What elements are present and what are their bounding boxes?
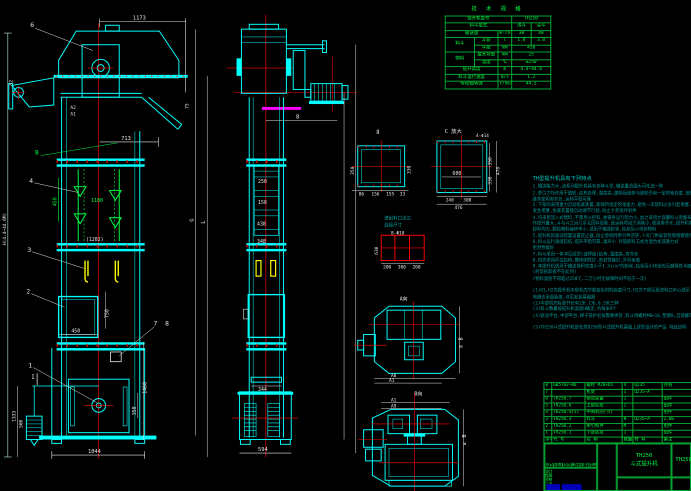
spec-cell: 料斗型式 [445, 23, 511, 30]
spec-cell: 温度 [475, 59, 498, 66]
bom-cell: M [622, 423, 633, 430]
title-block-highlight-1 [546, 484, 560, 490]
bom-cell: 机架 [585, 389, 622, 396]
bom-cell [552, 389, 585, 396]
title-block-drawing-no: TH250.0 [671, 443, 691, 477]
dim-450: 450 [71, 329, 80, 335]
drawing-number: TH250.0 [675, 456, 691, 464]
title-block-row-label: 标记 [545, 463, 554, 467]
detail-C-r1: 350 [488, 157, 494, 165]
bom-cell: 1 [622, 396, 633, 403]
side-dim-B: B [296, 115, 299, 121]
detail-flange-dv: 630 [374, 246, 380, 254]
bom-grid: 8GB5782—86螺栓 M20×654Q235外购7机架1Q235—A6TH2… [543, 382, 691, 444]
platform-side-dimB: B [462, 435, 468, 438]
spec-cell: 48 [531, 30, 551, 37]
spec-cell: m [498, 67, 512, 74]
bom-cell: TH250.4(5) [552, 410, 585, 417]
notes-block: TH型提升机具有下列特点 1.输送能力大,该系列提升机具有多种斗型,输送量范围大… [533, 176, 691, 332]
dim-1044: 1044 [88, 449, 101, 455]
detail-flange-t2: 连接尺寸 [384, 222, 402, 229]
bom-cell: 1 [544, 430, 552, 437]
spec-cell: ℃ [498, 59, 512, 66]
spec-cell: 1.8 [512, 38, 532, 45]
detail-flange-t1: 进出料口法兰 [384, 215, 411, 222]
spec-cell: 斗容 [475, 38, 498, 45]
bom-cell: 组件 [662, 396, 691, 403]
spec-cell: 提升高度 [445, 67, 498, 74]
spec-cell: m/s [498, 74, 512, 81]
dim-A1: A1 [70, 112, 76, 118]
bom-cell: 1 [622, 389, 633, 396]
spec-cell: 料斗运行速度 [445, 74, 498, 81]
bom-cell: 2 [544, 423, 552, 430]
detail-II-dim-left: 350 [350, 166, 356, 175]
spec-table: 技 术 规 格 提升机型号TH250料斗型式浅斗深斗输送量m³/h3048料斗斗… [445, 8, 551, 89]
bom-cell [633, 423, 662, 430]
spec-cell: 输送量 [445, 30, 498, 37]
detail-C-b1: 240 [446, 197, 454, 203]
spec-cell: 4.4~44.6 [512, 67, 551, 74]
notes-line: (4)驱动平台,中部平台,梯子及护栏按需要供货,料斗用螺栓M8×16,垫圈8,自… [533, 314, 691, 320]
dim-1333: 1333 [12, 411, 18, 422]
spec-cell: r/min [498, 81, 512, 88]
bom-cell [633, 403, 662, 410]
bom-cell: 上部区段 [585, 403, 622, 410]
platform-plan-a1: A1 [389, 378, 395, 384]
balloon-8: 8 [165, 321, 169, 328]
bom-cell: TH250.1 [552, 430, 585, 437]
bom-cell: 牵引构件 [585, 423, 622, 430]
platform-plan: A向 B a A8 A1 [354, 295, 464, 384]
platform-plan-dima: a [458, 345, 464, 348]
spec-cell: 斗距 [475, 45, 498, 52]
label-B-green: B [35, 151, 39, 157]
dim-1460: 1460 [143, 382, 149, 394]
bom-cell: Q235 [633, 383, 662, 390]
spec-cell: 1.2 [512, 74, 551, 81]
notes-line: 2.牵引力均作用于链轮,结构合理,强度高,磨损后链条与链轮仍有一定的啮合度,故传… [533, 191, 691, 197]
bom-cell: 料斗 [585, 417, 622, 424]
bom-cell: 组件 [662, 403, 691, 410]
dim-52: 52 [9, 80, 15, 86]
bom-cell: 组件 [662, 430, 691, 437]
spec-cell: ≤250 [512, 59, 551, 66]
dim-713: 713 [121, 136, 131, 142]
balloon-1: 1 [28, 363, 32, 370]
dim-1173: 1173 [133, 15, 146, 21]
detail-II-b3: 155 [386, 191, 394, 197]
dim-H: H(4.4~44.6M) [2, 213, 8, 245]
spec-cell: m³/h [498, 30, 512, 37]
platform-side-dima: a [462, 442, 468, 445]
detail-flange-b1: 200 [383, 264, 391, 270]
bom-cell: 6 [544, 396, 552, 403]
balloon-4: 4 [29, 178, 33, 185]
spec-cell: 浅斗 [512, 23, 532, 30]
side-dim-250: 250 [258, 179, 267, 185]
platform-side-a1: A1 [391, 398, 397, 404]
detail-flange-b2: 300 [398, 264, 406, 270]
bom-cell: 中间机壳(节) [585, 410, 622, 417]
bom-cell: TH250.3 [552, 417, 585, 424]
notes-line: 6.料斗运行速度较低,提升平稳可靠,噪声小 环链卸料方式为混合式或重力式 [533, 240, 691, 246]
detail-flange-b3: 200 [412, 264, 420, 270]
dim-350: 350 [132, 406, 138, 415]
bom-cell: 7 [544, 389, 552, 396]
bom-cell: 4 [622, 383, 633, 390]
detail-C-b3: 476 [454, 205, 462, 211]
bom-cell: 下部区段 [585, 430, 622, 437]
bom-cell: 螺栓 M20×65 [585, 383, 622, 390]
detail-II-label: Ⅱ [376, 130, 379, 136]
spec-cell: 提升机型号 [445, 16, 511, 23]
spec-cell: 44.5 [512, 81, 551, 88]
side-dim-594: 594 [258, 447, 268, 453]
side-view: B 250 150 438 348 344 [227, 15, 357, 457]
platform-plan-label: A向 [400, 295, 408, 302]
spec-cell: 物料 [445, 52, 474, 67]
title-block-signatures: 设计绘图审核工艺 [544, 468, 597, 491]
platform-plan-dimB: B [458, 337, 464, 340]
bom-cell [633, 396, 662, 403]
spec-table-grid: 提升机型号TH250料斗型式浅斗深斗输送量m³/h3048料斗斗容l1.83.0… [445, 15, 552, 89]
side-dim-150: 150 [258, 200, 267, 206]
dim-450-green: 450 [53, 197, 59, 206]
dim-A2: A2 [70, 105, 76, 111]
spec-table-title: 技 术 规 格 [445, 8, 551, 13]
bom-cell [622, 410, 633, 417]
bom-cell: 3 [544, 417, 552, 424]
spec-cell: 传动轴转速 [445, 81, 498, 88]
platform-side-label: B向 [414, 391, 422, 398]
spec-cell: mm [498, 52, 512, 59]
notes-line: (1)H1,H2为提升机中部机壳节数变化时的高度尺寸,H2为下部区段进料口中心线… [533, 289, 691, 295]
detail-II: Ⅱ 350 330 86 156 155 33 [350, 130, 413, 197]
detail-flange: 进出料口法兰 连接尺寸 8-Φ18 630 200 300 200 [374, 215, 424, 271]
bom-cell [633, 430, 662, 437]
detail-II-b1: 86 [359, 191, 365, 197]
spec-cell: 25 [512, 52, 551, 59]
bom-cell: Q235—A [633, 389, 662, 396]
bom-cell: 4 [544, 410, 552, 417]
title-block-scale-row [617, 477, 672, 491]
dim-750: 750 [104, 309, 110, 318]
detail-II-b4: 33 [400, 191, 406, 197]
detail-C-r2: 330 [488, 176, 494, 184]
title-block-row-label: 处数 [554, 463, 563, 467]
balloon-2: 2 [26, 289, 30, 296]
platform-side: B向 A1 A9 B a [358, 391, 468, 491]
spec-cell: 3.0 [531, 38, 551, 45]
spec-cell: TH250 [512, 16, 551, 23]
title-block-grid: 标记处数分区更改文件号签字日期 [544, 443, 597, 467]
detail-C-label: C 放大 [445, 127, 463, 135]
bom-cell [633, 410, 662, 417]
bom-cell [662, 389, 691, 396]
bom-cell: 5 [544, 403, 552, 410]
bom-cell: 外购 [662, 383, 691, 390]
title-block-spacer [597, 443, 617, 491]
detail-C-600: 600 [453, 171, 462, 177]
cad-screenshot: H(4.4~44.6M) 1173 713 [0, 0, 691, 491]
detail-C: C 放大 4-Φ14 600 350 330 478 240 300 476 [431, 127, 501, 211]
dim-L: L [201, 220, 207, 223]
title-block-sheet-row [671, 477, 691, 491]
bom-cell: 2.06 [662, 417, 691, 424]
spec-cell: 30 [512, 30, 532, 37]
dim-500: 500 [18, 419, 24, 427]
spec-cell: l [498, 38, 512, 45]
dim-G: G [190, 218, 196, 221]
spec-cell: 450 [512, 45, 551, 52]
front-view: H(4.4~44.6M) 1173 713 [2, 15, 207, 458]
bom-cell: TH250.6 [552, 403, 585, 410]
notes-title: TH型提升机具有下列特点 [533, 176, 691, 182]
dim-1202: (1202) [86, 237, 104, 243]
dim-1180: 1180 [91, 198, 103, 204]
spec-cell: 最大块度 [475, 52, 498, 59]
bom-table: 8GB5782—86螺栓 M20×654Q235外购7机架1Q235—A6TH2… [543, 382, 691, 444]
title-block-row-label: 分区 [563, 463, 572, 467]
bom-cell: 1 [622, 430, 633, 437]
title-block-product: TH250 斗式提升机 [617, 443, 672, 477]
bom-cell: 8 [544, 383, 552, 390]
platform-side-a9: A9 [391, 403, 397, 409]
bom-cell: Q235—A [633, 417, 662, 424]
side-dim-348: 348 [257, 239, 266, 245]
title-block-model: TH250 [636, 452, 652, 460]
detail-II-dim-right: 330 [406, 165, 412, 174]
title-block-name: 斗式提升机 [630, 460, 657, 468]
bom-cell: 组件 [662, 423, 691, 430]
bom-cell: 驱动装置 [585, 396, 622, 403]
notes-line: (5)TH250斗式提升机是在原D250型斗式提升机基础上改型设计的产品 特此说… [533, 326, 691, 332]
detail-C-b2: 300 [463, 197, 471, 203]
bom-cell: TH250.2 [552, 423, 585, 430]
title-block-row-label: 更改文件号 [572, 463, 581, 467]
dim-75: 75 [185, 103, 191, 109]
cad-canvas: H(4.4~44.6M) 1173 713 [0, 0, 691, 491]
balloon-7: 7 [153, 321, 157, 328]
bom-cell: TH250.7 [552, 396, 585, 403]
detail-C-holes: 4-Φ14 [476, 133, 489, 139]
bom-cell: 组件 [662, 410, 691, 417]
title-block: 标记处数分区更改文件号签字日期 设计绘图审核工艺 TH250 斗式提升机 TH2… [543, 442, 691, 491]
balloon-3: 3 [27, 247, 31, 254]
bom-cell: GB5782—86 [552, 383, 585, 390]
section-mark-I: I [31, 375, 35, 381]
detail-II-b2: 156 [371, 191, 379, 197]
title-block-row-label: 签字 [581, 463, 590, 467]
balloon-6: 6 [30, 22, 34, 29]
title-block-row-label: 日期 [589, 463, 597, 467]
title-block-highlight-2 [562, 484, 582, 490]
detail-C-r3: 478 [495, 167, 501, 175]
spec-cell: 深斗 [531, 23, 551, 30]
side-dim-438: 438 [257, 222, 266, 228]
spec-cell: mm [498, 45, 512, 52]
bom-cell: N [622, 417, 633, 424]
spec-cell: 料斗 [445, 38, 474, 53]
bom-cell: 1 [622, 403, 633, 410]
